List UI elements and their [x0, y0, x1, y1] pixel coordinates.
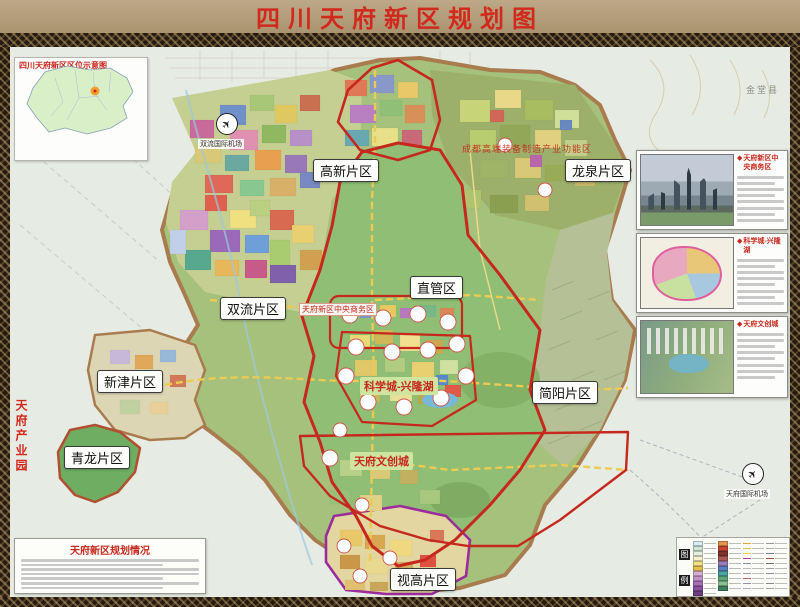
legend-label-bar — [752, 583, 764, 585]
planning-info-title: 天府新区规划情况 — [21, 542, 199, 557]
legend-swatch — [743, 558, 751, 560]
legend-label-bar — [704, 563, 716, 565]
legend-swatch — [743, 578, 751, 580]
legend-label-bar — [775, 548, 787, 550]
legend-label-bar — [729, 568, 741, 570]
map-legend: 图 例 — [676, 537, 790, 597]
legend-swatch — [743, 563, 751, 565]
legend-label-bar — [729, 573, 741, 575]
shuangliu-airport-label: 双流国际机场 — [198, 139, 244, 149]
legend-swatch — [766, 558, 774, 560]
ornate-border-bottom — [0, 597, 800, 607]
cbd-skyline-photo — [640, 154, 734, 226]
legend-swatch — [766, 563, 774, 565]
legend-label-bar — [729, 543, 741, 545]
legend-label-bar — [704, 553, 716, 555]
region-label-shuangliu: 双流片区 — [220, 297, 286, 320]
page-title: 四川天府新区规划图 — [256, 0, 544, 34]
legend-label-bar — [752, 563, 764, 565]
legend-label-bar — [752, 543, 764, 545]
diamond-bullet-icon: ◆ — [737, 237, 742, 255]
planning-info-box: 天府新区规划情况 — [14, 538, 206, 594]
planning-map-page: { "title": "四川天府新区规划图", "ui": { "bullet"… — [0, 0, 800, 607]
legend-label-bar — [752, 568, 764, 570]
legend-swatch — [718, 586, 728, 592]
legend-label-bar — [775, 543, 787, 545]
legend-item — [766, 586, 787, 591]
legend-label-bar — [729, 558, 741, 560]
legend-char-tu: 图 — [679, 549, 690, 560]
legend-label-bar — [729, 553, 741, 555]
legend-swatch — [766, 578, 774, 580]
legend-char-li: 例 — [679, 575, 690, 586]
legend-swatch — [743, 548, 751, 550]
science-city-plan-image — [640, 237, 734, 309]
tianfu-airport-label: 天府国际机场 — [724, 489, 770, 499]
legend-label-bar — [775, 578, 787, 580]
legend-swatch — [743, 553, 751, 555]
legend-label-bar — [729, 563, 741, 565]
urban-mosaic-gaoxin — [345, 75, 425, 146]
legend-label-bar — [729, 548, 741, 550]
legend-label-bar — [775, 573, 787, 575]
legend-swatch — [766, 568, 774, 570]
zone-label-wenchuang: 天府文创城 — [350, 452, 413, 470]
region-label-shigao: 视高片区 — [390, 568, 456, 591]
legend-swatch — [766, 543, 774, 545]
shuangliu-airport-icon: ✈ — [216, 113, 238, 135]
diamond-bullet-icon: ◆ — [737, 320, 742, 329]
legend-label-bar — [729, 578, 741, 580]
legend-column — [718, 541, 741, 593]
legend-label-bar — [752, 558, 764, 560]
legend-column — [693, 541, 716, 593]
location-inset-map: 四川天府新区区位示意图 — [14, 57, 148, 161]
legend-label-bar — [704, 568, 716, 570]
legend-swatch — [693, 591, 703, 597]
legend-swatch — [743, 568, 751, 570]
legend-label-bar — [704, 548, 716, 550]
legend-swatch — [766, 588, 774, 590]
legend-swatch — [743, 573, 751, 575]
place-name-jintang: 金堂县 — [746, 83, 779, 96]
sichuan-outline-map — [15, 58, 145, 144]
legend-swatch — [766, 553, 774, 555]
legend-label-bar — [704, 558, 716, 560]
legend-label-bar — [752, 578, 764, 580]
legend-item — [693, 591, 716, 596]
legend-label-bar — [775, 568, 787, 570]
region-label-longquan: 龙泉片区 — [565, 159, 631, 182]
legend-swatch — [743, 583, 751, 585]
ornate-border-top — [0, 33, 800, 47]
legend-label-bar — [775, 583, 787, 585]
legend-label-bar — [775, 588, 787, 590]
legend-label-bar — [704, 593, 716, 595]
wenchuang-aerial-photo — [640, 320, 734, 394]
inset-science: ◆ 科学城-兴隆湖 — [636, 233, 788, 313]
legend-swatches — [693, 541, 787, 593]
legend-title: 图 例 — [679, 541, 690, 593]
legend-label-bar — [704, 583, 716, 585]
contour-lines — [649, 55, 769, 155]
legend-swatch — [743, 543, 751, 545]
legend-label-bar — [752, 588, 764, 590]
inset-cbd: ◆ 天府新区中央商务区 — [636, 150, 788, 230]
legend-label-bar — [704, 573, 716, 575]
inset-science-title: ◆ 科学城-兴隆湖 — [737, 237, 784, 255]
region-label-qinglong: 青龙片区 — [64, 446, 130, 469]
legend-swatch — [766, 548, 774, 550]
legend-label-bar — [775, 558, 787, 560]
legend-item — [718, 586, 741, 591]
legend-label-bar — [775, 563, 787, 565]
zone-label-cbd: 天府新区中央商务区 — [299, 303, 377, 316]
zone-label-equipment: 成都高端装备制造产业功能区 — [462, 142, 592, 155]
map-canvas: 四川天府新区区位示意图 高新片区 龙泉片区 双流片区 直管区 新津片区 简阳片区… — [10, 47, 790, 597]
legend-column — [766, 541, 787, 593]
zone-label-science-city: 科学城-兴隆湖 — [360, 377, 438, 395]
region-label-jianyang: 简阳片区 — [532, 381, 598, 404]
legend-label-bar — [752, 553, 764, 555]
inset-wenchuang-title: ◆ 天府文创城 — [737, 320, 784, 329]
legend-label-bar — [752, 548, 764, 550]
tianfu-airport-icon: ✈ — [742, 463, 764, 485]
legend-label-bar — [704, 588, 716, 590]
diamond-bullet-icon: ◆ — [737, 154, 742, 172]
inset-wenchuang: ◆ 天府文创城 — [636, 316, 788, 398]
inset-cbd-title: ◆ 天府新区中央商务区 — [737, 154, 784, 172]
legend-item — [743, 586, 764, 591]
legend-label-bar — [775, 553, 787, 555]
legend-swatch — [743, 588, 751, 590]
legend-label-bar — [704, 578, 716, 580]
ornate-border-left — [0, 47, 10, 597]
legend-label-bar — [729, 588, 741, 590]
legend-swatch — [766, 583, 774, 585]
region-label-zhiguan: 直管区 — [410, 276, 463, 299]
region-label-gaoxin: 高新片区 — [313, 159, 379, 182]
ornate-border-right — [790, 47, 800, 597]
legend-label-bar — [752, 573, 764, 575]
title-bar: 四川天府新区规划图 — [0, 0, 800, 33]
region-label-xinjin: 新津片区 — [97, 370, 163, 393]
legend-column — [743, 541, 764, 593]
zone-label-industry-park: 天府产业园 — [13, 399, 30, 474]
legend-label-bar — [729, 583, 741, 585]
legend-swatch — [766, 573, 774, 575]
legend-label-bar — [704, 543, 716, 545]
